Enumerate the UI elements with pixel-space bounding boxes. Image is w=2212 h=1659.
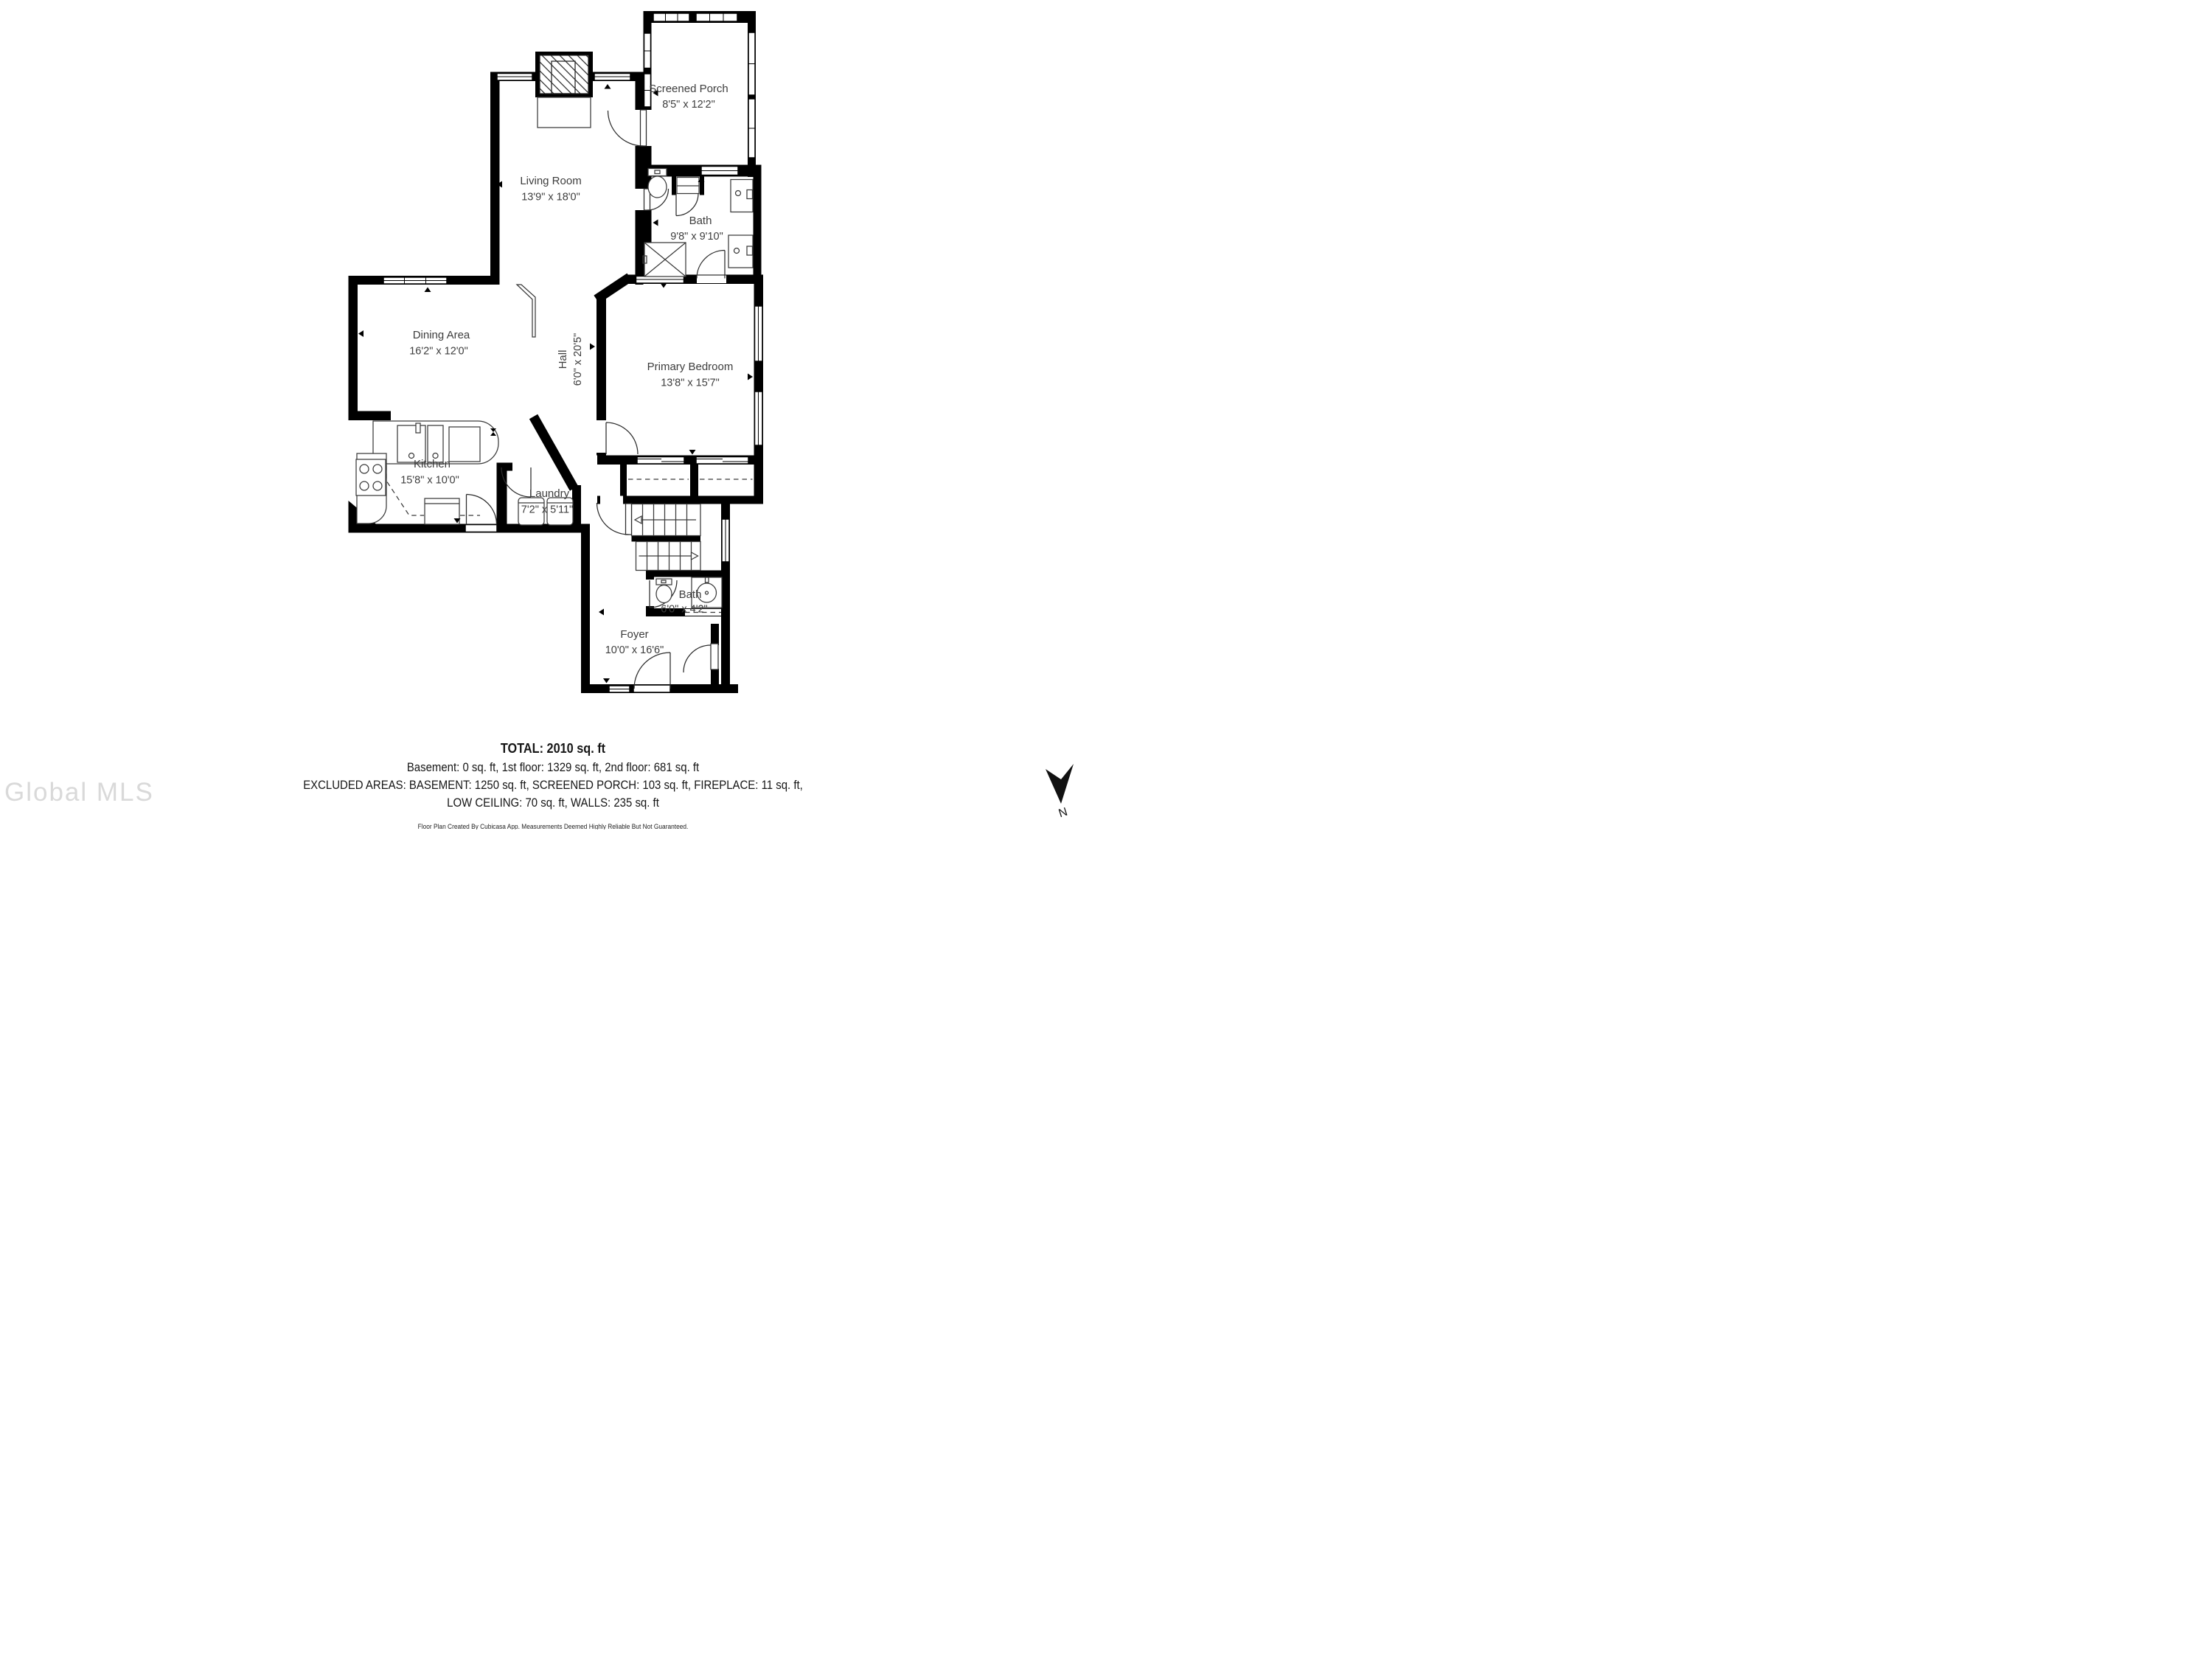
window [609,686,630,692]
room-dims-foyer: 10'0" x 16'6" [605,644,664,656]
laundry-diagonal-wall [534,417,574,489]
summary-excluded-1: EXCLUDED AREAS: BASEMENT: 1250 sq. ft, S… [303,779,803,792]
north-arrow-icon: N [1046,764,1074,820]
sink-icon [731,180,753,212]
room-label-screened-porch: Screened Porch [649,83,728,95]
room-label-primary-bedroom: Primary Bedroom [647,361,734,373]
fireplace-icon [538,55,591,128]
window [755,306,763,361]
dishwasher-icon [425,498,459,524]
window [594,74,630,81]
entry-threshold [633,685,670,692]
toilet-icon [648,169,667,198]
room-dims-laundry: 7'2" x 5'11" [521,504,573,516]
summary-total: TOTAL: 2010 sq. ft [501,740,605,756]
room-label-living-room: Living Room [520,175,581,187]
hearth [538,97,591,128]
watermark-global-mls: Global MLS [4,778,154,807]
room-label-foyer: Foyer [620,628,648,641]
window [748,99,755,158]
room-dims-kitchen: 15'8" x 10'0" [400,475,459,487]
sliding-door [637,457,684,465]
window [383,277,447,284]
credit-line: Floor Plan Created By Cubicasa App. Meas… [418,823,689,829]
summary-block: TOTAL: 2010 sq. ft Basement: 0 sq. ft, 1… [303,740,803,829]
door-kitchen-exterior [467,495,497,525]
door-bedroom [606,422,638,454]
hall-railing [517,285,535,337]
window [636,276,684,284]
window [722,519,729,562]
room-dims-bath-lower: 6'0" x 4'2" [661,604,707,616]
sliding-door [696,457,748,465]
room-dims-dining-area: 16'2" x 12'0" [409,346,468,358]
room-dims-primary-bedroom: 13'8" x 15'7" [661,378,720,389]
room-label-laundry: Laundry [529,487,570,500]
door-nook [676,194,698,216]
window [701,167,738,175]
shower-icon [643,243,686,276]
room-dims-bath-upper: 9'8" x 9'10" [670,231,723,243]
room-dims-screened-porch: 8'5" x 12'2" [662,99,714,111]
window [497,74,532,81]
window [653,13,689,21]
room-dims-hall: 6'0" x 20'5" [572,333,584,386]
window [696,13,737,21]
door-swings [467,110,726,689]
kitchen-sink-icon [397,423,443,462]
room-label-hall: Hall [557,350,569,369]
room-label-bath-lower: Bath [679,588,702,601]
window [755,392,763,445]
window [748,32,755,95]
room-label-kitchen: Kitchen [414,458,451,470]
kitchen-door-threshold [465,525,497,532]
summary-excluded-2: LOW CEILING: 70 sq. ft, WALLS: 235 sq. f… [447,796,659,810]
room-dims-living-room: 13'9" x 18'0" [521,192,580,204]
door-stairs [597,503,632,535]
toilet-icon [656,579,672,603]
door-bath-bedroom [697,251,725,279]
sink-icon [728,235,753,268]
door-foyer-closet [684,644,718,672]
door-entry [634,653,670,689]
floorplan-canvas: Screened Porch 8'5" x 12'2" Living Room … [0,0,1106,829]
floorplan-page: Screened Porch 8'5" x 12'2" Living Room … [0,0,1106,829]
north-label: N [1057,806,1069,821]
window [644,33,651,69]
room-label-dining-area: Dining Area [413,329,470,341]
summary-floors: Basement: 0 sq. ft, 1st floor: 1329 sq. … [407,761,700,774]
door-porch [608,110,647,146]
stove-icon [356,459,386,495]
linen-shelf [677,178,699,194]
room-label-bath-upper: Bath [689,215,712,227]
cutting-board [449,427,480,462]
